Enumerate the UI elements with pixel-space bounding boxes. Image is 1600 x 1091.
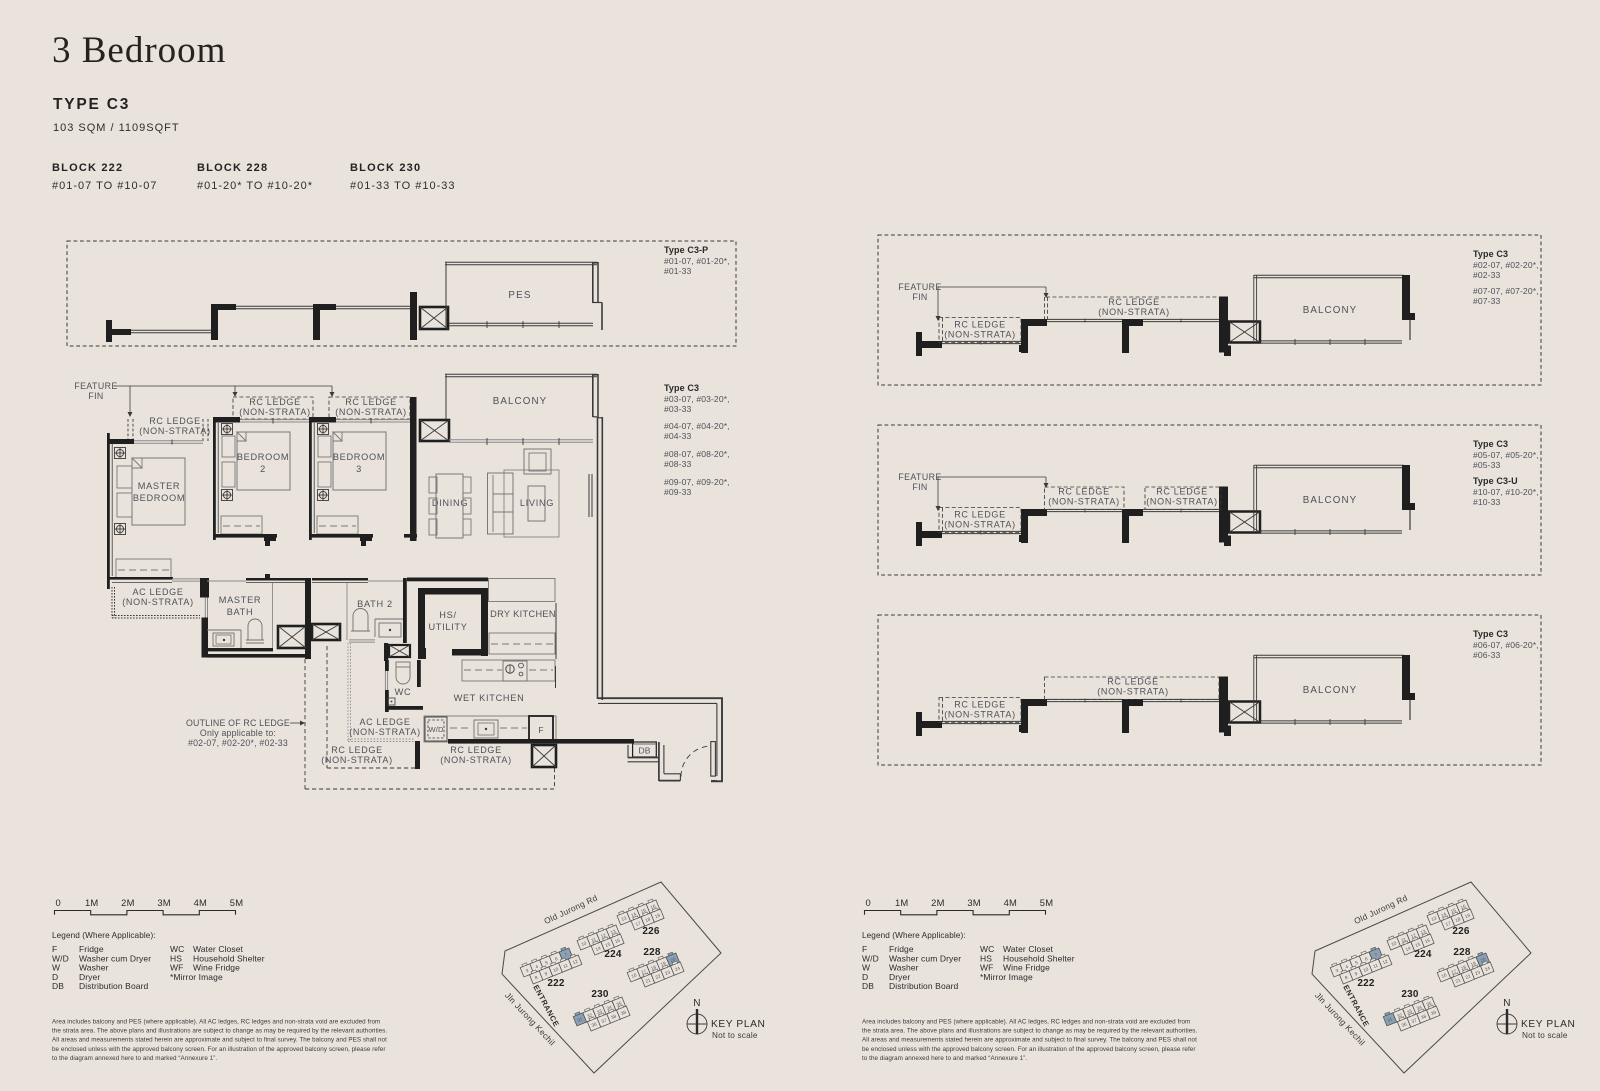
svg-text:Type C3: Type C3 [1473, 249, 1508, 259]
svg-text:the strata area. The above pla: the strata area. The above plans and ill… [52, 1028, 387, 1035]
svg-text:BALCONY: BALCONY [1303, 305, 1358, 316]
svg-text:Type C3: Type C3 [1473, 439, 1508, 449]
svg-text:FEATURE: FEATURE [898, 282, 941, 292]
svg-text:DB: DB [52, 981, 64, 991]
svg-text:FEATURE: FEATURE [898, 472, 941, 482]
svg-text:FIN: FIN [88, 391, 103, 401]
svg-text:W/D: W/D [428, 725, 443, 734]
svg-text:#02-07, #02-20*, #02-33: #02-07, #02-20*, #02-33 [188, 738, 288, 748]
svg-text:FIN: FIN [912, 482, 927, 492]
svg-text:KEY PLAN: KEY PLAN [711, 1019, 765, 1030]
svg-text:(NON-STRATA): (NON-STRATA) [1146, 497, 1218, 507]
svg-text:#06-07, #06-20*,: #06-07, #06-20*, [1473, 640, 1539, 650]
svg-text:FIN: FIN [912, 292, 927, 302]
svg-text:Distribution Board: Distribution Board [79, 981, 149, 991]
svg-text:BEDROOM: BEDROOM [133, 493, 185, 503]
svg-text:BEDROOM: BEDROOM [333, 452, 385, 462]
svg-text:#01-07, #01-20*,: #01-07, #01-20*, [664, 256, 730, 266]
svg-text:3: 3 [356, 464, 362, 474]
svg-text:(NON-STRATA): (NON-STRATA) [321, 755, 393, 765]
svg-text:#09-07, #09-20*,: #09-07, #09-20*, [664, 477, 730, 487]
svg-text:222: 222 [1357, 978, 1375, 989]
svg-text:#05-07, #05-20*,: #05-07, #05-20*, [1473, 450, 1539, 460]
svg-text:#03-07, #03-20*,: #03-07, #03-20*, [664, 394, 730, 404]
svg-text:BLOCK 228: BLOCK 228 [197, 162, 268, 174]
svg-text:4M: 4M [1004, 897, 1017, 908]
svg-text:be enclosed unless with the ap: be enclosed unless with the approved bal… [862, 1046, 1195, 1053]
svg-text:N: N [1503, 998, 1510, 1009]
svg-text:MASTER: MASTER [138, 481, 180, 491]
svg-text:#01-20* TO #10-20*: #01-20* TO #10-20* [197, 180, 313, 192]
svg-text:#01-07 TO #10-07: #01-07 TO #10-07 [52, 180, 158, 192]
svg-text:224: 224 [1414, 949, 1432, 960]
svg-text:TYPE C3: TYPE C3 [53, 96, 130, 113]
svg-text:226: 226 [1452, 926, 1470, 937]
svg-text:RC LEDGE: RC LEDGE [1108, 297, 1160, 307]
svg-text:RC LEDGE: RC LEDGE [1107, 677, 1159, 687]
svg-text:#06-33: #06-33 [1473, 650, 1500, 660]
svg-text:BATH 2: BATH 2 [357, 599, 393, 609]
svg-text:2: 2 [260, 464, 266, 474]
svg-text:222: 222 [547, 978, 565, 989]
svg-text:(NON-STRATA): (NON-STRATA) [1098, 307, 1170, 317]
svg-text:(NON-STRATA): (NON-STRATA) [239, 407, 311, 417]
svg-text:FEATURE: FEATURE [74, 381, 117, 391]
svg-text:RC LEDGE: RC LEDGE [249, 397, 301, 407]
svg-text:HS/: HS/ [439, 610, 456, 620]
svg-text:(NON-STRATA): (NON-STRATA) [349, 727, 421, 737]
svg-text:#04-33: #04-33 [664, 431, 691, 441]
svg-text:BLOCK 230: BLOCK 230 [350, 162, 421, 174]
svg-text:(NON-STRATA): (NON-STRATA) [139, 426, 211, 436]
svg-text:RC LEDGE: RC LEDGE [1058, 487, 1110, 497]
svg-text:(NON-STRATA): (NON-STRATA) [122, 597, 194, 607]
svg-text:AC LEDGE: AC LEDGE [359, 717, 410, 727]
svg-text:3M: 3M [967, 897, 980, 908]
svg-text:#07-33: #07-33 [1473, 296, 1500, 306]
svg-text:#05-33: #05-33 [1473, 460, 1500, 470]
svg-text:RC LEDGE: RC LEDGE [331, 745, 383, 755]
svg-text:DRY KITCHEN: DRY KITCHEN [490, 609, 556, 619]
svg-text:BLOCK 222: BLOCK 222 [52, 162, 123, 174]
svg-text:Not to scale: Not to scale [1522, 1031, 1568, 1040]
svg-text:0: 0 [56, 897, 61, 908]
svg-text:Distribution Board: Distribution Board [889, 981, 959, 991]
svg-text:Type C3-P: Type C3-P [664, 245, 708, 255]
svg-text:Type C3: Type C3 [1473, 629, 1508, 639]
svg-text:DB: DB [862, 981, 874, 991]
svg-text:BALCONY: BALCONY [493, 396, 548, 407]
svg-text:3M: 3M [157, 897, 170, 908]
svg-text:#08-07, #08-20*,: #08-07, #08-20*, [664, 449, 730, 459]
svg-text:AC LEDGE: AC LEDGE [132, 587, 183, 597]
svg-text:*Mirror Image: *Mirror Image [980, 972, 1033, 982]
svg-text:#01-33: #01-33 [664, 266, 691, 276]
svg-text:LIVING: LIVING [520, 498, 554, 508]
svg-text:to the diagram annexed here to: to the diagram annexed here to and marke… [52, 1055, 217, 1062]
svg-text:230: 230 [591, 989, 609, 1000]
svg-text:(NON-STRATA): (NON-STRATA) [1097, 687, 1169, 697]
svg-text:0: 0 [866, 897, 871, 908]
svg-text:1M: 1M [895, 897, 908, 908]
svg-text:RC LEDGE: RC LEDGE [954, 510, 1006, 520]
svg-text:RC LEDGE: RC LEDGE [149, 416, 201, 426]
svg-text:103 SQM / 1109SQFT: 103 SQM / 1109SQFT [53, 122, 180, 134]
svg-text:#07-07, #07-20*,: #07-07, #07-20*, [1473, 286, 1539, 296]
svg-text:BATH: BATH [227, 607, 254, 617]
svg-text:N: N [693, 998, 700, 1009]
svg-text:2M: 2M [931, 897, 944, 908]
svg-text:#02-07, #02-20*,: #02-07, #02-20*, [1473, 260, 1539, 270]
svg-text:#10-33: #10-33 [1473, 497, 1500, 507]
svg-text:#08-33: #08-33 [664, 459, 691, 469]
svg-text:RC LEDGE: RC LEDGE [954, 320, 1006, 330]
svg-text:(NON-STRATA): (NON-STRATA) [440, 755, 512, 765]
svg-text:Type C3-U: Type C3-U [1473, 476, 1518, 486]
svg-text:WC: WC [395, 687, 412, 697]
svg-text:(NON-STRATA): (NON-STRATA) [944, 710, 1016, 720]
svg-text:Legend (Where Applicable):: Legend (Where Applicable): [862, 931, 966, 940]
svg-text:3 Bedroom: 3 Bedroom [52, 30, 226, 71]
svg-text:MASTER: MASTER [219, 595, 261, 605]
svg-text:#10-07, #10-20*,: #10-07, #10-20*, [1473, 487, 1539, 497]
svg-text:Only applicable to:: Only applicable to: [200, 728, 276, 738]
svg-text:the strata area. The above pla: the strata area. The above plans and ill… [862, 1028, 1197, 1035]
svg-text:228: 228 [1453, 947, 1471, 958]
svg-text:BALCONY: BALCONY [1303, 685, 1358, 696]
svg-text:1M: 1M [85, 897, 98, 908]
svg-text:UTILITY: UTILITY [428, 622, 467, 632]
svg-text:BEDROOM: BEDROOM [237, 452, 289, 462]
svg-text:KEY PLAN: KEY PLAN [1521, 1019, 1575, 1030]
svg-text:4M: 4M [194, 897, 207, 908]
svg-text:RC LEDGE: RC LEDGE [450, 745, 502, 755]
svg-text:WET KITCHEN: WET KITCHEN [454, 693, 525, 703]
svg-text:(NON-STRATA): (NON-STRATA) [335, 407, 407, 417]
svg-text:OUTLINE OF RC LEDGE: OUTLINE OF RC LEDGE [186, 718, 290, 728]
svg-text:Area includes balcony and PES: Area includes balcony and PES (where app… [52, 1018, 380, 1025]
svg-text:2M: 2M [121, 897, 134, 908]
svg-text:224: 224 [604, 949, 622, 960]
svg-text:#09-33: #09-33 [664, 487, 691, 497]
svg-text:Not to scale: Not to scale [712, 1031, 758, 1040]
svg-text:#02-33: #02-33 [1473, 270, 1500, 280]
svg-text:*Mirror Image: *Mirror Image [170, 972, 223, 982]
svg-text:All areas and measurements sta: All areas and measurements stated herein… [862, 1037, 1197, 1044]
svg-text:F: F [538, 725, 543, 735]
svg-text:Legend (Where Applicable):: Legend (Where Applicable): [52, 931, 156, 940]
svg-text:#03-33: #03-33 [664, 404, 691, 414]
svg-text:DB: DB [638, 746, 650, 756]
svg-text:#04-07, #04-20*,: #04-07, #04-20*, [664, 421, 730, 431]
svg-text:Area includes balcony and PES: Area includes balcony and PES (where app… [862, 1018, 1190, 1025]
svg-text:228: 228 [643, 947, 661, 958]
svg-text:All areas and measurements sta: All areas and measurements stated herein… [52, 1037, 387, 1044]
svg-text:BALCONY: BALCONY [1303, 495, 1358, 506]
svg-text:(NON-STRATA): (NON-STRATA) [944, 520, 1016, 530]
svg-text:be enclosed unless with the ap: be enclosed unless with the approved bal… [52, 1046, 385, 1053]
svg-text:5M: 5M [1040, 897, 1053, 908]
svg-text:230: 230 [1401, 989, 1419, 1000]
svg-text:RC LEDGE: RC LEDGE [345, 397, 397, 407]
svg-text:(NON-STRATA): (NON-STRATA) [1048, 497, 1120, 507]
svg-text:5M: 5M [230, 897, 243, 908]
svg-text:Type C3: Type C3 [664, 383, 699, 393]
svg-text:to the diagram annexed here to: to the diagram annexed here to and marke… [862, 1055, 1027, 1062]
svg-text:(NON-STRATA): (NON-STRATA) [944, 330, 1016, 340]
svg-text:PES: PES [508, 290, 531, 301]
svg-text:RC LEDGE: RC LEDGE [954, 700, 1006, 710]
svg-text:226: 226 [642, 926, 660, 937]
svg-text:#01-33 TO #10-33: #01-33 TO #10-33 [350, 180, 456, 192]
svg-text:RC LEDGE: RC LEDGE [1156, 487, 1208, 497]
